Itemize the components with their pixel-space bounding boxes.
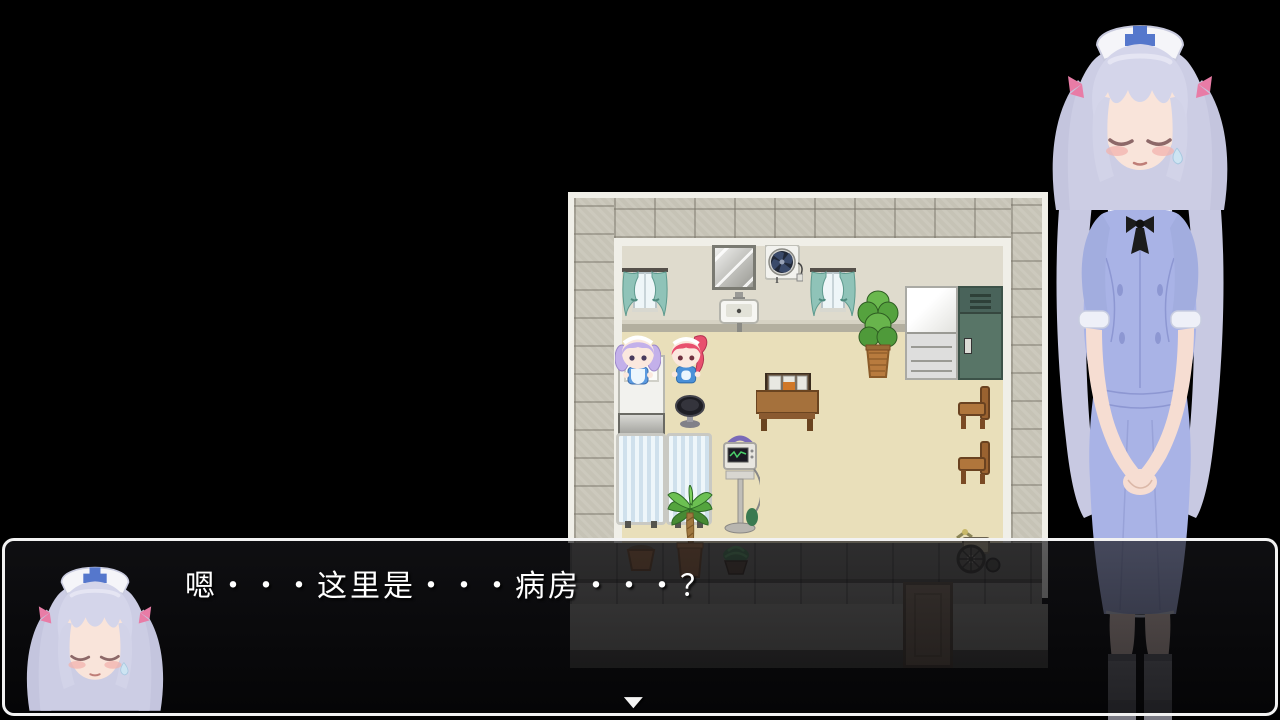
ventilation-fan-icon (765, 245, 803, 283)
wall-mirror (712, 245, 756, 290)
curtained-window-left (622, 268, 668, 318)
wooden-chair-bottom (956, 440, 992, 486)
refrigerator (905, 286, 958, 380)
character-purple-maid (615, 330, 661, 388)
medical-monitor-stand (720, 433, 760, 539)
stool (674, 394, 706, 430)
dialogue-box[interactable]: 嗯・・・这里是・・・病房・・・？ (2, 538, 1278, 716)
potted-plant (856, 287, 900, 379)
nurse-portrait (17, 547, 173, 711)
storage-locker (958, 286, 1003, 380)
inner-trim-top (614, 238, 1011, 246)
wall-sink (718, 292, 760, 332)
curtained-window-right (810, 268, 856, 318)
game-screen: 嗯・・・这里是・・・病房・・・？ ▼ (0, 0, 1280, 720)
desk-with-trays (756, 373, 820, 431)
stone-wall-left (574, 198, 614, 543)
continue-indicator[interactable]: ▼ (617, 692, 649, 714)
inner-trim-right (1003, 238, 1011, 543)
stone-wall-top (574, 198, 1042, 238)
privacy-screen-left (616, 433, 666, 525)
character-pink-maid (666, 330, 710, 388)
wooden-chair-top (956, 385, 992, 431)
dialogue-text: 嗯・・・这里是・・・病房・・・？ (185, 561, 713, 605)
